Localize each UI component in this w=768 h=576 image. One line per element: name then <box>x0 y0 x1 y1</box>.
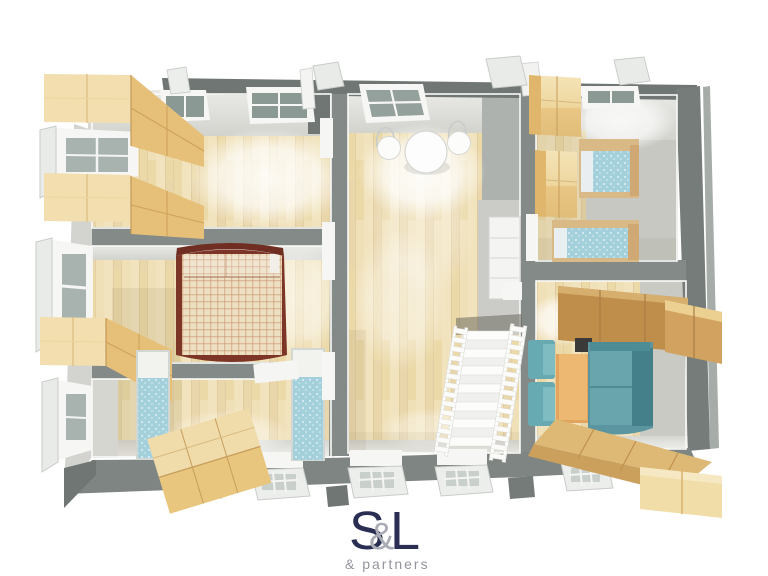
svg-text:& partners: & partners <box>345 556 430 572</box>
svg-text:L: L <box>390 501 420 561</box>
